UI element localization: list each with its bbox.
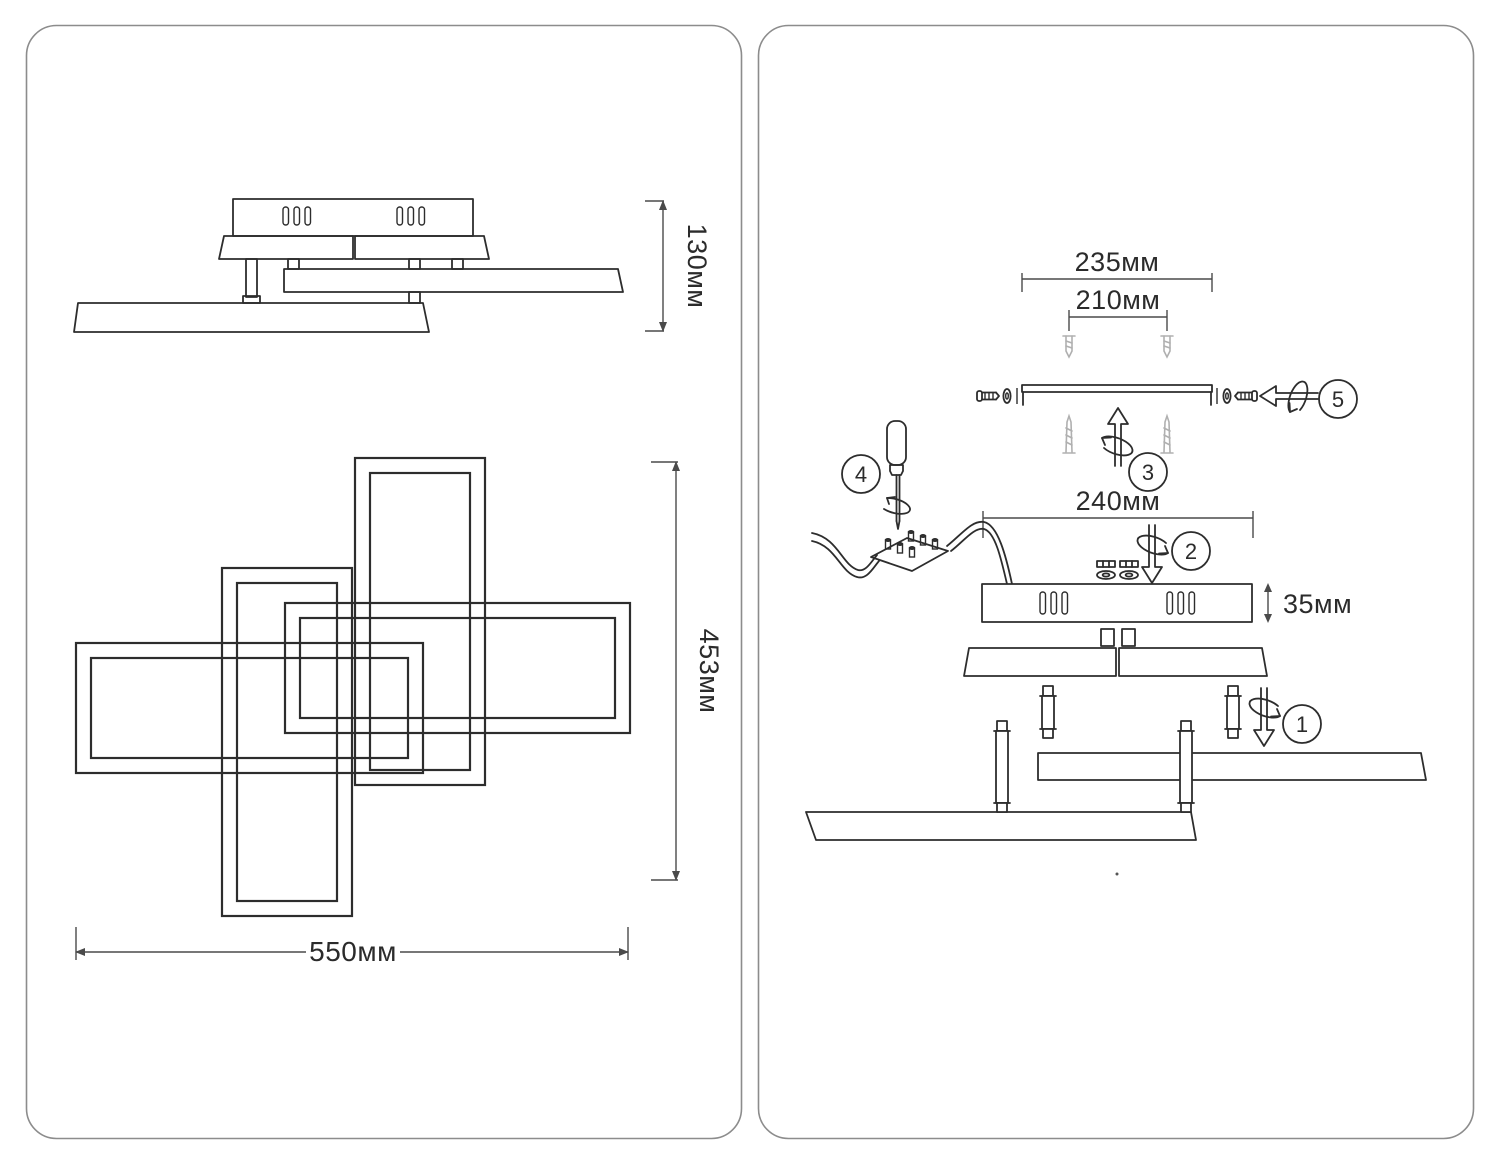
dim-240-label: 240мм — [1076, 486, 1161, 516]
dim-235-label: 235мм — [1075, 247, 1160, 277]
light-bar-lower — [806, 812, 1196, 840]
step-number: 2 — [1185, 539, 1197, 564]
installation-diagram: 130мм — [0, 0, 1500, 1166]
step-number: 5 — [1332, 387, 1344, 412]
right-panel-frame — [759, 26, 1474, 1139]
dim-550-label: 550мм — [309, 936, 397, 967]
step-number: 4 — [855, 462, 867, 487]
left-panel-svg: 130мм — [0, 0, 1500, 1166]
standoff — [994, 721, 1010, 812]
standoff — [1225, 686, 1241, 738]
dim-210-label: 210мм — [1076, 285, 1161, 315]
dim-453-label: 453мм — [694, 629, 724, 714]
canopy — [982, 584, 1252, 622]
dot-mark — [1116, 873, 1119, 876]
light-bar-upper — [1038, 753, 1426, 780]
step-number: 3 — [1142, 460, 1154, 485]
dim-35-label: 35мм — [1283, 589, 1352, 619]
standoff — [1040, 686, 1056, 738]
dim-130-label: 130мм — [682, 224, 712, 309]
standoff — [1178, 721, 1194, 812]
left-panel: 130мм — [27, 26, 742, 1139]
left-panel-frame — [27, 26, 742, 1139]
step-number: 1 — [1296, 712, 1308, 737]
right-panel: 235мм 210мм — [759, 26, 1474, 1139]
